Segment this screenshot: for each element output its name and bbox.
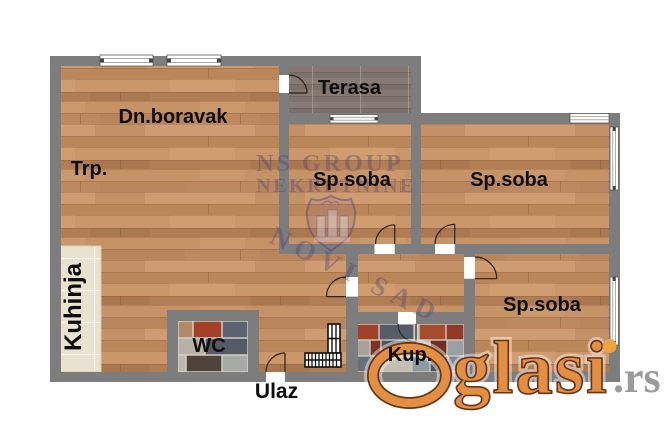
svg-text:Dn.boravak: Dn.boravak	[119, 106, 229, 128]
svg-text:Kuhinja: Kuhinja	[60, 262, 87, 351]
svg-text:Kup.: Kup.	[388, 344, 432, 366]
svg-text:Ulaz: Ulaz	[255, 380, 298, 403]
svg-text:.rs: .rs	[613, 353, 661, 402]
svg-text:Trp.: Trp.	[71, 158, 108, 180]
svg-text:glasi: glasi	[453, 327, 609, 410]
svg-text:Sp.soba: Sp.soba	[503, 294, 582, 316]
svg-text:Sp.soba: Sp.soba	[313, 169, 392, 191]
svg-text:Terasa: Terasa	[318, 77, 382, 99]
svg-text:WC: WC	[192, 335, 225, 357]
svg-text:Sp.soba: Sp.soba	[470, 169, 549, 191]
